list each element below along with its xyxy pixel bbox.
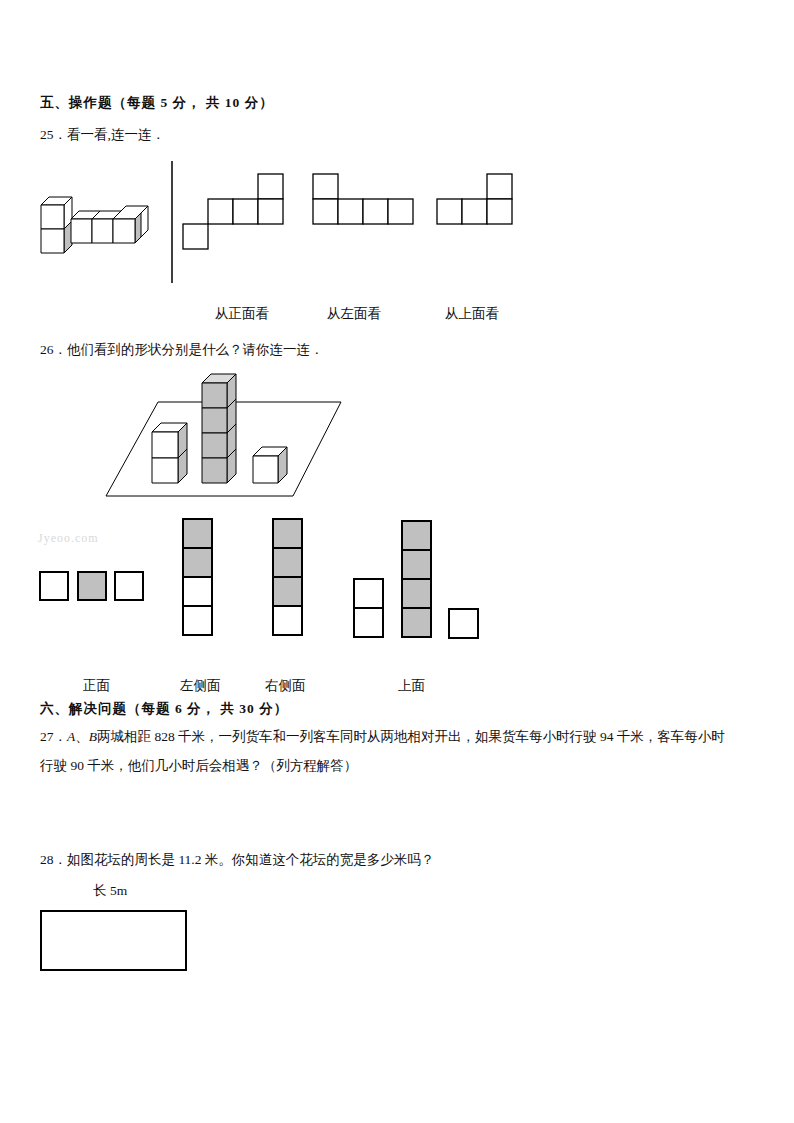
left-side-view-square [183,548,212,577]
q26-label-front: 正面 [83,677,110,694]
q26-label-left-side: 左侧面 [180,677,221,694]
q25-label-left-view: 从左面看 [327,305,381,322]
q25-nets-figure [180,170,515,255]
q27-city-a: A [67,729,75,744]
front-view-square [40,572,68,600]
worksheet-page: 五、操作题（每题 5 分， 共 10 分） 25．看一看,连一连． 从正面看 从… [0,0,794,1123]
top-view-square [402,521,431,550]
q27-line1: 27．A、B两城相距 828 千米，一列货车和一列客车同时从两地相对开出，如果货… [40,728,725,745]
right-side-view-square [273,548,302,577]
section6-header: 六、解决问题（每题 6 分， 共 30 分） [40,700,288,717]
q27-seg-number: 27． [40,729,67,744]
left-side-view-square [183,606,212,635]
q28-flowerbed-rectangle [40,910,187,971]
q25-label-top-view: 从上面看 [445,305,499,322]
left-side-view-square [183,519,212,548]
top-view-square [354,608,383,637]
q25-label-front-view: 从正面看 [215,305,269,322]
right-side-view-square [273,606,302,635]
q28-length-label: 长 5m [93,882,127,899]
q25-cube-solid-figure [38,193,163,263]
right-side-view-square [273,577,302,606]
front-view-square [78,572,106,600]
top-view-square [402,579,431,608]
q26-label-right-side: 右侧面 [265,677,306,694]
q25-prompt: 25．看一看,连一连． [40,126,165,143]
q27-line2: 行驶 90 千米，他们几小时后会相遇？（列方程解答） [40,757,357,774]
q26-prompt: 26．他们看到的形状分别是什么？请你连一连． [40,341,324,358]
left-side-view-square [183,577,212,606]
top-view-square [402,608,431,637]
q27-seg-comma: 、 [75,729,89,744]
q27-city-b: B [89,729,97,744]
right-side-view-square [273,519,302,548]
q26-answer-shapes-figure [30,510,500,650]
q26-label-top: 上面 [398,677,425,694]
top-view-square [354,579,383,608]
section5-header: 五、操作题（每题 5 分， 共 10 分） [40,94,274,111]
top-view-square [402,550,431,579]
q26-cube-scene-figure [100,370,350,500]
front-view-square [115,572,143,600]
q27-seg-body: 两城相距 828 千米，一列货车和一列客车同时从两地相对开出，如果货车每小时行驶… [97,729,725,744]
q25-divider-line [171,161,173,283]
top-view-square [449,609,478,638]
q28-prompt: 28．如图花坛的周长是 11.2 米。你知道这个花坛的宽是多少米吗？ [40,851,434,868]
